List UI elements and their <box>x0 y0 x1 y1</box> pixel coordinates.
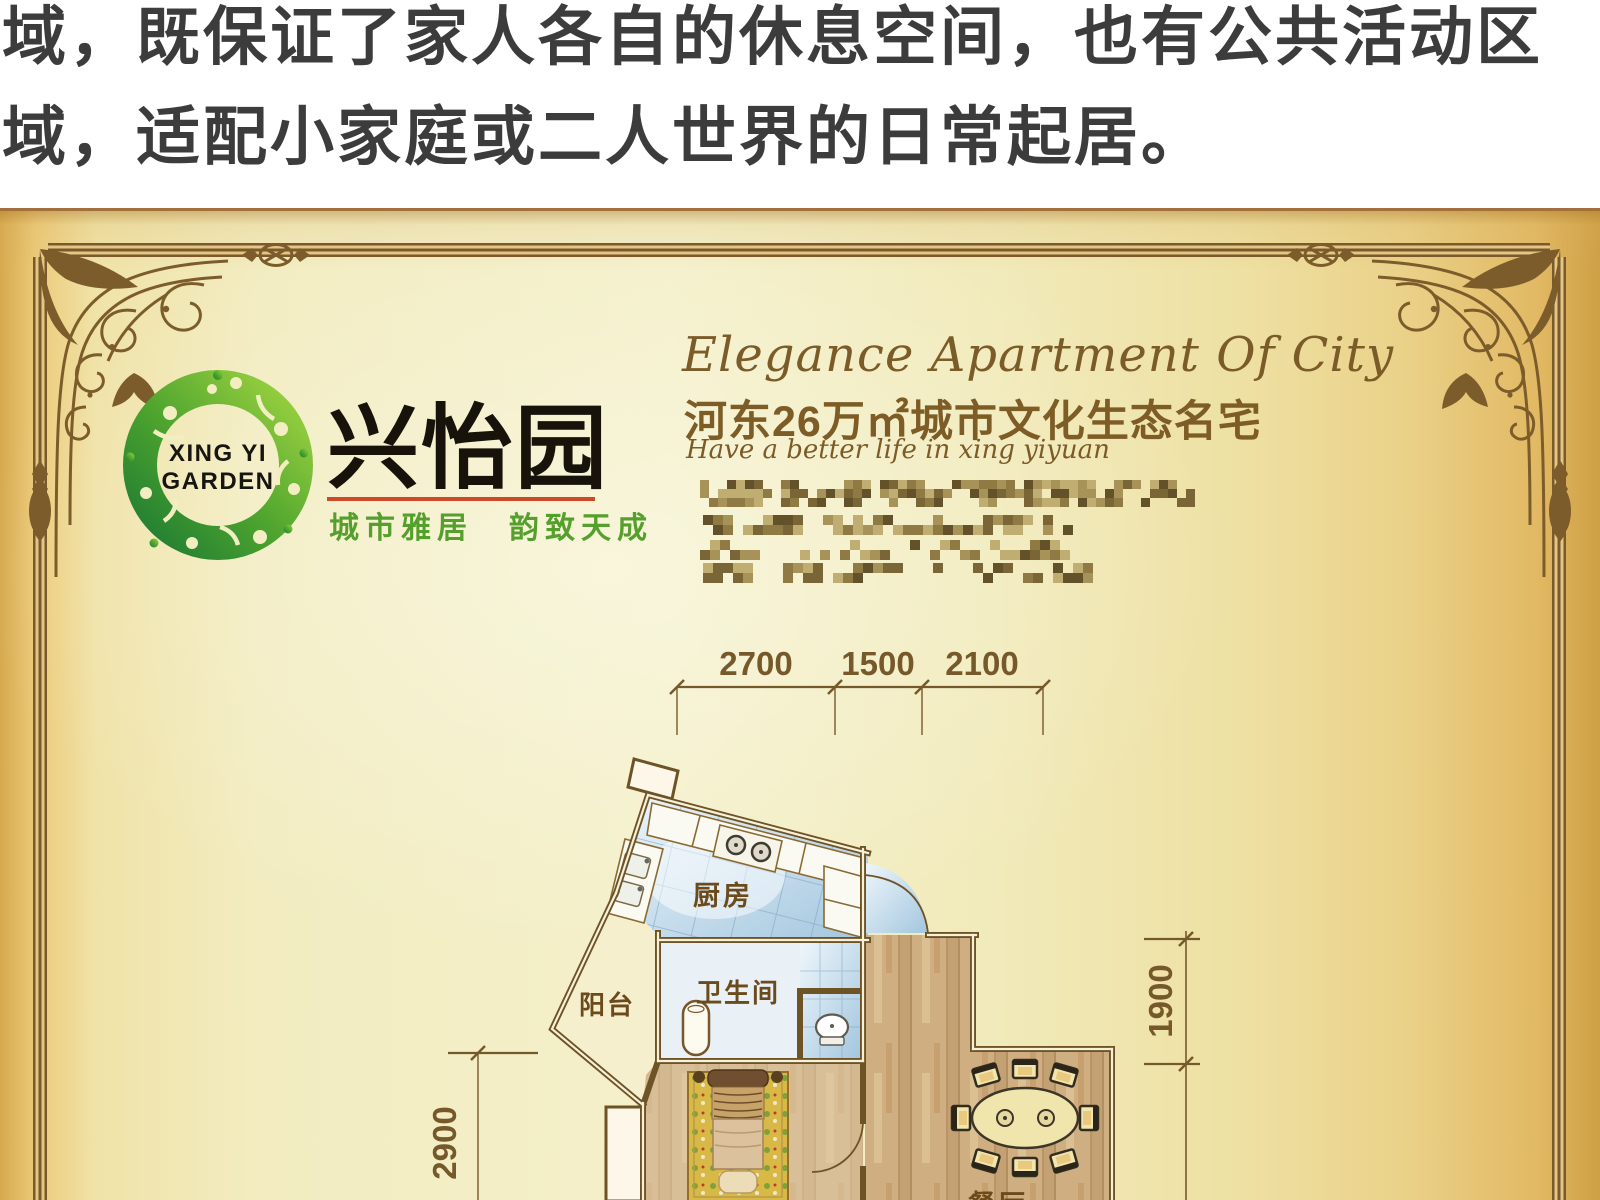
property-poster-image[interactable]: XING YI GARDEN 兴怡园 城市雅居 韵致天成 Elegance Ap… <box>0 208 1600 1200</box>
logo-underline <box>327 497 595 501</box>
label-balcony: 阳台 <box>579 990 635 1020</box>
dim-top-3: 2100 <box>945 645 1018 682</box>
dim-left: 2900 <box>426 1106 463 1179</box>
logo-ring-emblem: XING YI GARDEN <box>118 361 318 575</box>
label-kitchen: 厨房 <box>693 881 753 911</box>
dining-table-set <box>952 1060 1098 1176</box>
logo-mark-line1: XING YI <box>169 440 267 467</box>
dim-right: 1900 <box>1142 964 1179 1037</box>
redacted-line <box>700 480 1195 507</box>
frame-clasp-left <box>236 235 316 275</box>
bed <box>688 1070 788 1200</box>
logo-tagline: 城市雅居 韵致天成 <box>329 503 653 547</box>
headline-english: Elegance Apartment Of City <box>682 327 1394 383</box>
flue-box <box>628 759 678 799</box>
intro-line-2: 域，适配小家庭或二人世界的日常起居。 <box>2 86 1208 178</box>
frame-clasp-right <box>1281 235 1361 275</box>
closet-box <box>606 1107 644 1200</box>
frame-finial-left <box>26 458 54 542</box>
toilet <box>816 1015 848 1046</box>
intro-paragraph: 域，既保证了家人各自的休息空间，也有公共活动区 域，适配小家庭或二人世界的日常起… <box>0 0 1600 208</box>
intro-line-1: 域，既保证了家人各自的休息空间，也有公共活动区 <box>2 0 1543 78</box>
subheadline-english: Have a better life in xing yiyuan <box>686 435 1110 465</box>
kitchen-door-tile <box>865 863 928 933</box>
logo-name-cn: 兴怡园 <box>327 403 609 495</box>
dim-top-1: 2700 <box>719 645 792 682</box>
floorplan-drawing: 2700 1500 2100 2900 1900 厨房 阳台 卫生间 餐厅 <box>420 623 1250 1200</box>
redacted-line <box>700 540 1070 560</box>
redacted-line <box>703 515 1073 535</box>
frame-finial-right <box>1546 458 1574 542</box>
label-dining: 餐厅 <box>968 1190 1028 1200</box>
redacted-line <box>703 563 1097 583</box>
logo-mark-line2: GARDEN <box>161 468 274 495</box>
dim-top-2: 1500 <box>841 645 914 682</box>
label-bathroom: 卫生间 <box>696 978 780 1008</box>
water-heater <box>683 1001 709 1055</box>
article-page: 域，既保证了家人各自的休息空间，也有公共活动区 域，适配小家庭或二人世界的日常起… <box>0 0 1600 1200</box>
